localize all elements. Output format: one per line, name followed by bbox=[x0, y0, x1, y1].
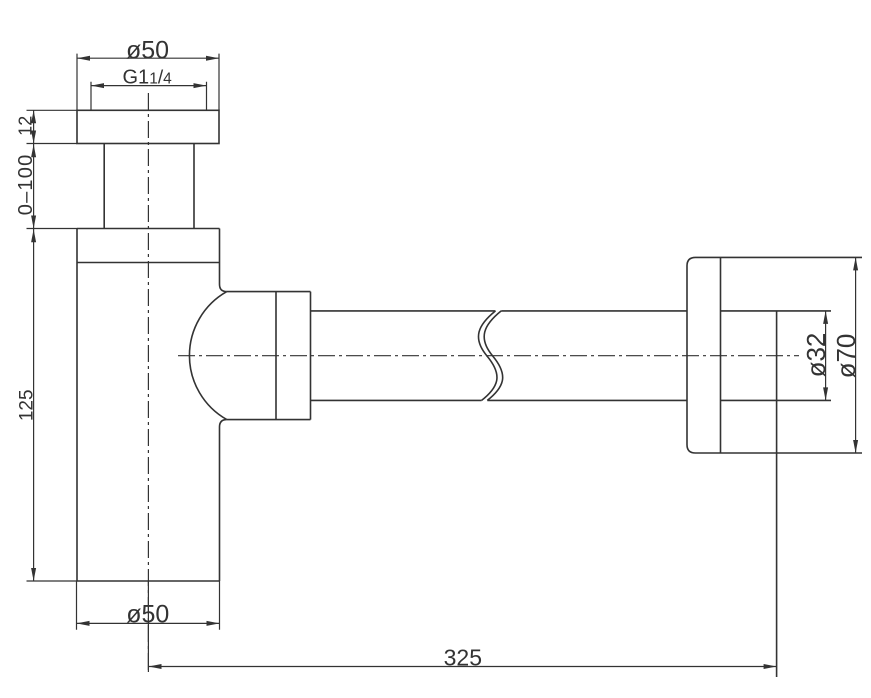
svg-text:ø50: ø50 bbox=[126, 37, 169, 65]
svg-text:0–100: 0–100 bbox=[15, 154, 37, 216]
svg-text:12: 12 bbox=[16, 116, 36, 136]
svg-text:325: 325 bbox=[444, 645, 482, 671]
svg-text:ø70: ø70 bbox=[831, 334, 861, 379]
svg-text:ø50: ø50 bbox=[126, 601, 169, 629]
svg-text:125: 125 bbox=[17, 389, 38, 421]
svg-text:G11/4: G11/4 bbox=[123, 67, 173, 89]
svg-text:ø32: ø32 bbox=[801, 333, 831, 378]
